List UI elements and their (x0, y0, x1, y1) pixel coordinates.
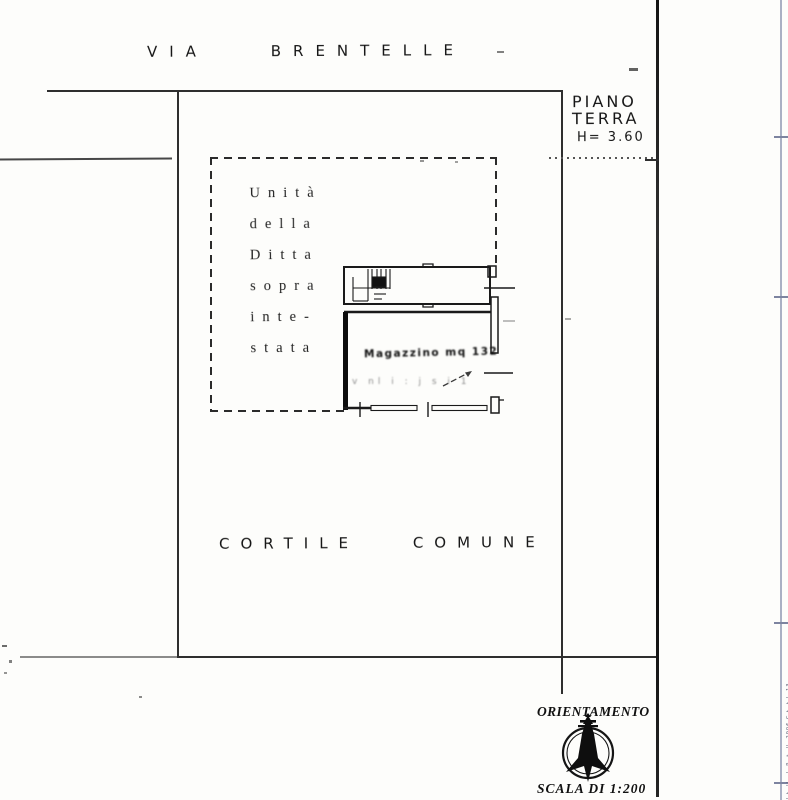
courtyard-word-comune: COMUNE (413, 533, 546, 552)
ownership-note-line: Ditta (250, 240, 322, 272)
faint-illegible-note: v nl i : j s i 1 (352, 377, 471, 387)
ownership-note-line: Unità (249, 178, 321, 210)
street-name-label: VIA BRENTELLE (147, 41, 465, 61)
right-wall-piers (484, 266, 515, 413)
left-reference-line (0, 158, 172, 160)
ownership-note: Unità della Ditta sopra inte- stata (249, 178, 323, 364)
ownership-note-line: sopra (250, 271, 322, 303)
stair-landing-fill (372, 277, 386, 287)
ink-speck (503, 320, 515, 322)
floor-plan-drawing (335, 250, 525, 425)
magazzino-room (343, 312, 491, 417)
scanned-floor-plan-page: VIA BRENTELLE l·t··ll· ·l· P··t··ll· 290… (0, 0, 788, 800)
wall-pier (491, 297, 498, 353)
ink-speck (565, 318, 571, 320)
ownership-note-line: stata (250, 333, 322, 365)
courtyard-label: CORTILE COMUNE (219, 533, 546, 553)
street-word-via: VIA (147, 43, 208, 61)
stair-strip-outline (344, 267, 490, 304)
courtyard-word-cortile: CORTILE (219, 534, 359, 553)
plot-left-boundary-line (177, 90, 179, 657)
floor-label-line2: TERRA (572, 109, 640, 128)
scale-label: SCALA DI 1:200 (537, 781, 646, 797)
scan-edge-tick (774, 136, 788, 138)
ink-speck (420, 160, 424, 162)
street-word-brentelle: BRENTELLE (271, 41, 465, 60)
plot-top-boundary-line (47, 90, 563, 92)
window-symbol (371, 406, 417, 411)
ink-speck (2, 645, 7, 647)
dashed-parcel-outline-bottom (210, 410, 344, 412)
ownership-note-line: inte- (250, 302, 322, 334)
ink-speck (497, 51, 504, 53)
plot-bottom-boundary-line-left (20, 656, 178, 658)
dashed-parcel-outline-left (210, 157, 212, 412)
plot-bottom-boundary-line (177, 656, 658, 658)
dashed-parcel-outline-top (210, 157, 497, 159)
ownership-note-line: della (250, 209, 322, 241)
ceiling-height-label: H= 3.60 (577, 130, 645, 145)
scan-edge-line (780, 0, 782, 800)
frame-tick-mark (645, 159, 659, 161)
wall-pier (491, 397, 499, 413)
ink-speck (629, 68, 638, 71)
window-symbol (432, 406, 487, 411)
scan-edge-tick (774, 296, 788, 298)
ink-speck (455, 161, 458, 163)
ink-speck (4, 672, 7, 674)
north-arrow-icon (560, 712, 618, 784)
staircase (353, 269, 390, 301)
ink-speck (139, 696, 142, 698)
sheet-frame-vertical-line (656, 0, 659, 797)
plot-right-boundary-line (561, 90, 563, 694)
room-left-thick-wall (343, 312, 348, 410)
dotted-reference-line (549, 157, 657, 159)
ink-speck (9, 660, 12, 663)
